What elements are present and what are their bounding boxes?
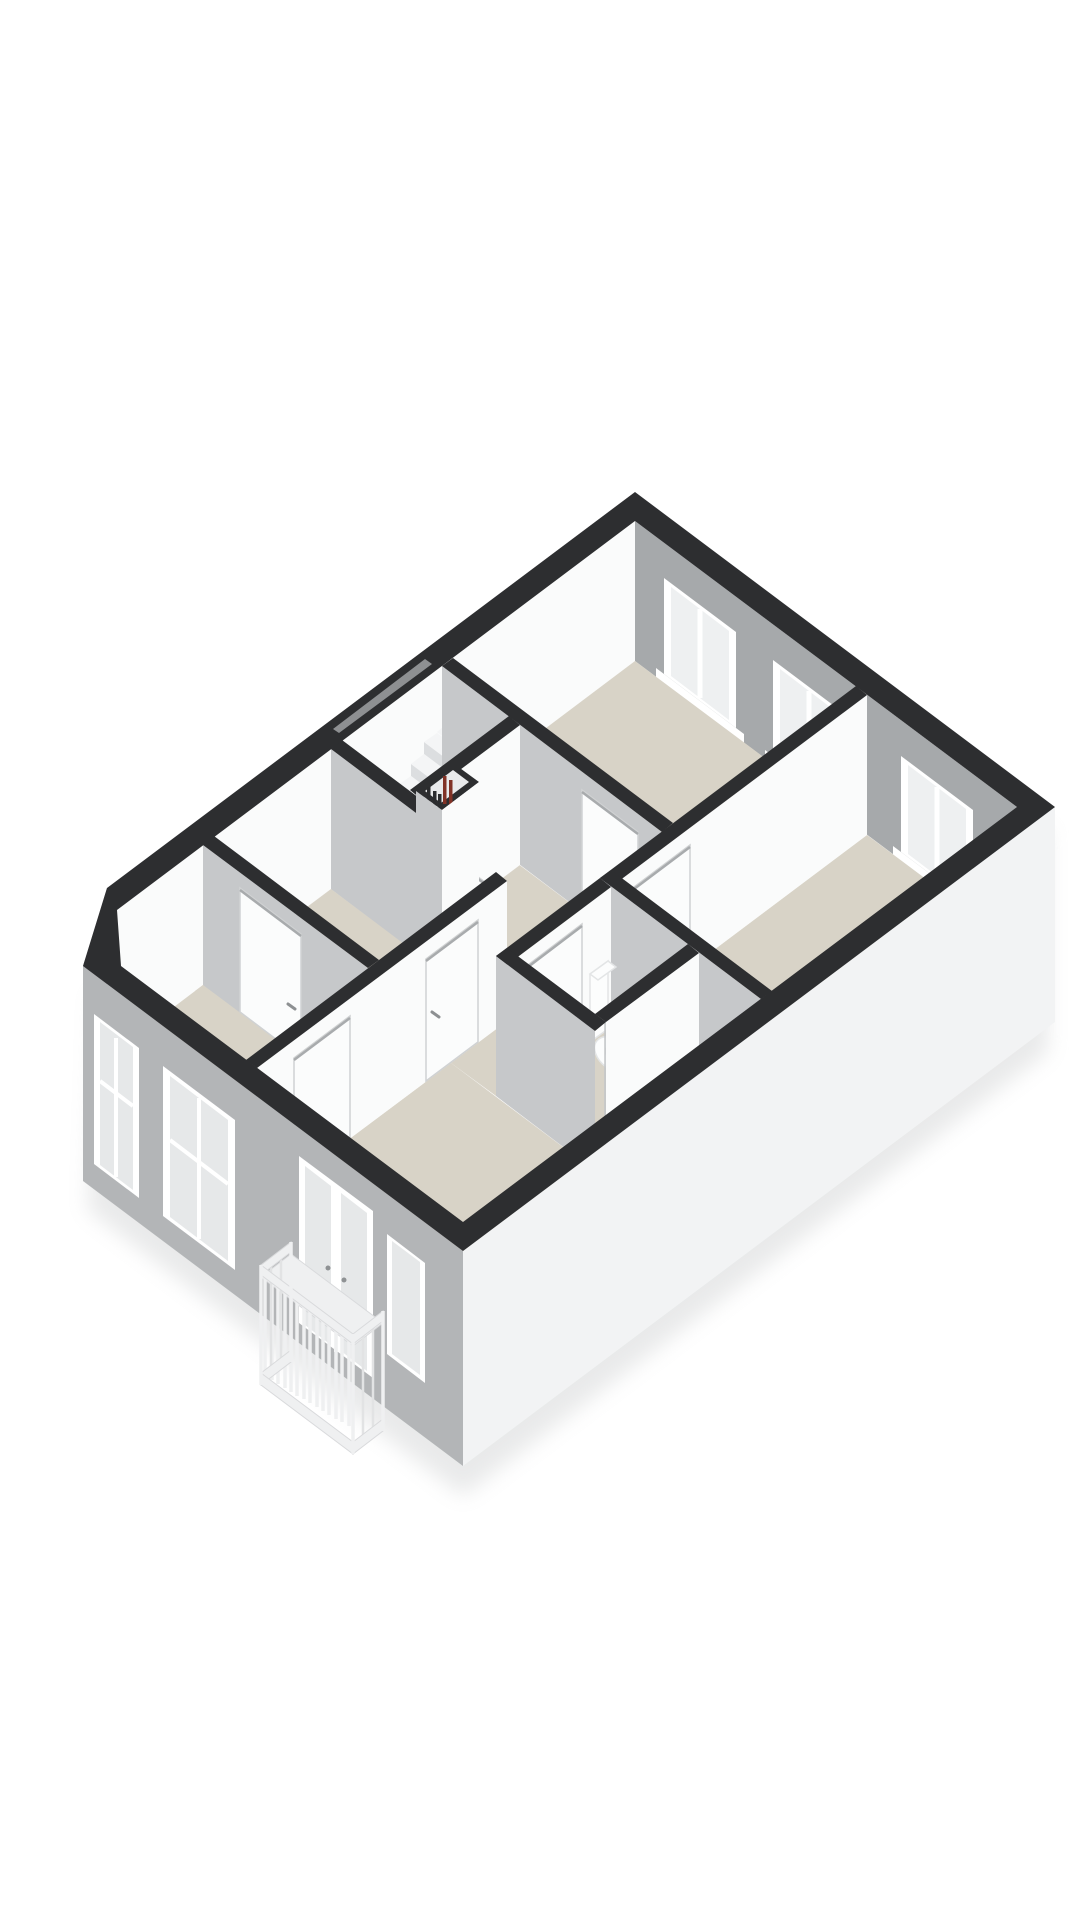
french-door-handle	[326, 1266, 331, 1271]
floorplan-canvas	[0, 0, 1080, 1920]
floorplan-3d-svg	[0, 0, 1080, 1920]
pipe-red-1	[443, 776, 447, 804]
french-door-handle	[342, 1278, 347, 1283]
